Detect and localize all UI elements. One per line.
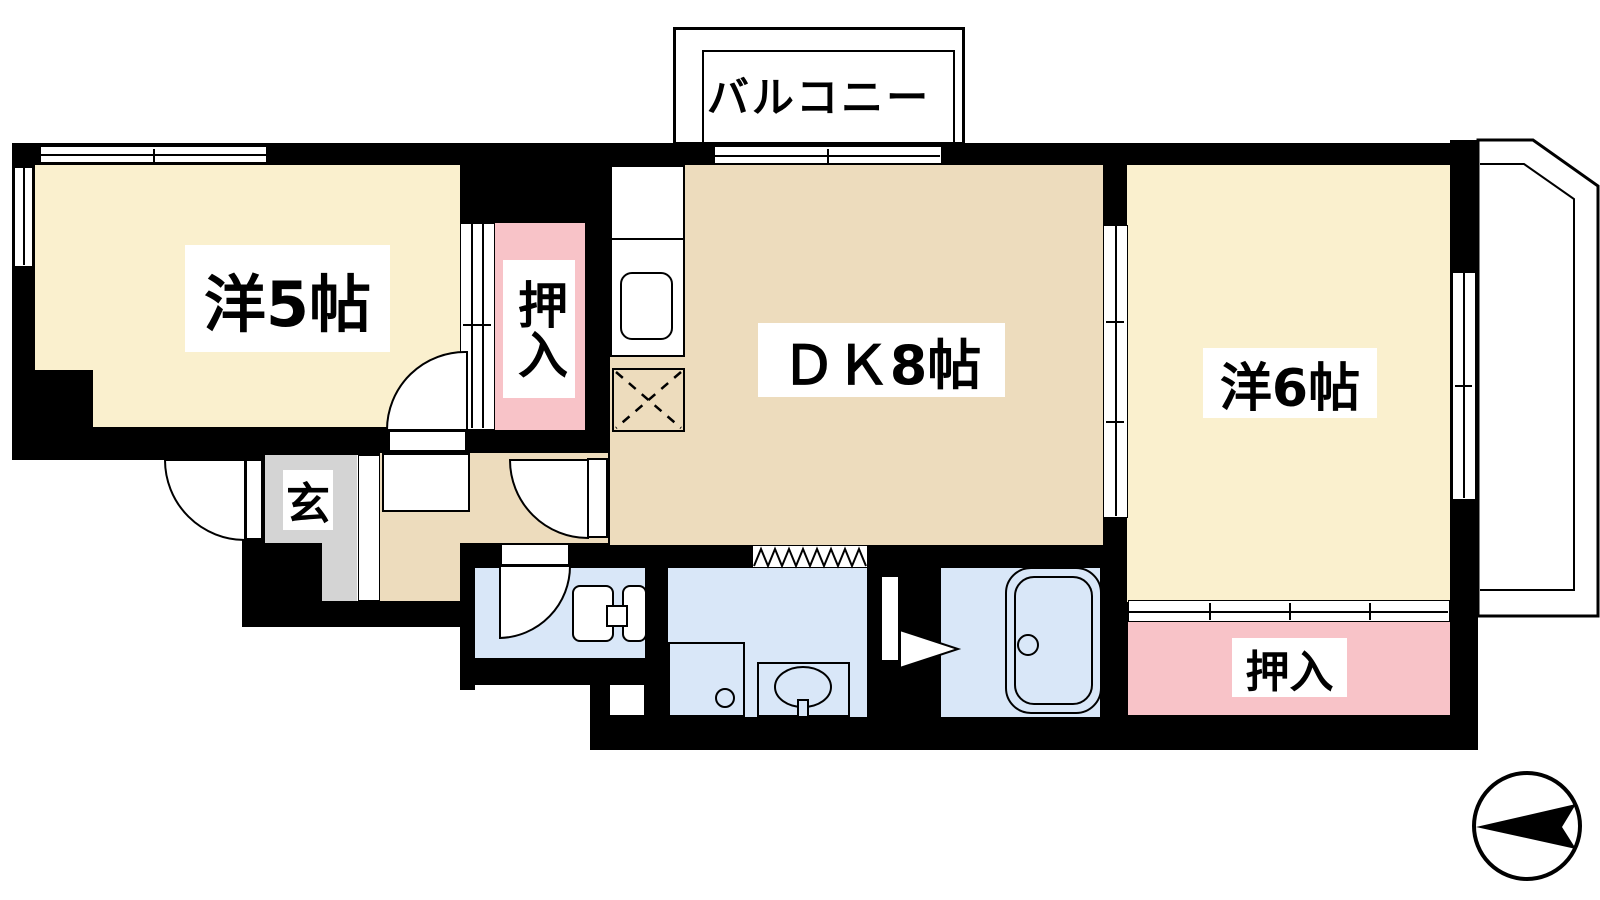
wall-washroom-toilet — [644, 545, 668, 740]
wall-bath-east — [1100, 518, 1130, 750]
kitchen-sink — [620, 272, 673, 340]
window-dk-balcony — [714, 146, 942, 164]
door-closet-bottom-sliding[interactable] — [1128, 600, 1450, 622]
wall-toilet-bath — [867, 568, 941, 740]
washroom-door[interactable] — [500, 543, 570, 566]
entry-door-swing — [165, 460, 245, 540]
hallway-nook — [380, 543, 460, 601]
entrance-step — [358, 455, 380, 601]
compass-icon — [1474, 773, 1580, 879]
label-closet-left: 押入 — [503, 260, 575, 398]
balcony-top-label: バルコニー — [690, 68, 948, 120]
washing-machine-connector — [606, 605, 628, 627]
window-western5-top — [40, 146, 267, 163]
label-closet-bottom: 押入 — [1232, 638, 1347, 697]
wall-western5-south — [93, 427, 612, 455]
door-closet-left-sliding[interactable] — [460, 223, 495, 430]
wall-closet-bottom-south — [1128, 715, 1478, 750]
shoe-cabinet — [382, 453, 470, 512]
label-entrance: 玄 — [283, 470, 333, 530]
door-western6-west-sliding[interactable] — [1103, 225, 1128, 518]
floor-plan: バルコニー バルコニー — [0, 0, 1600, 900]
window-western6-east — [1452, 272, 1476, 500]
label-western5: 洋5帖 — [185, 245, 390, 352]
western5-door[interactable] — [388, 430, 467, 452]
accordion-door[interactable] — [752, 545, 868, 568]
wall-step-sw — [590, 660, 610, 750]
bathtub-inner — [1014, 576, 1093, 705]
bathroom-door[interactable] — [880, 575, 900, 662]
label-western6: 洋6帖 — [1203, 348, 1377, 418]
wall-washroom-south — [460, 658, 648, 685]
label-dk: ＤＫ8帖 — [758, 323, 1005, 397]
wall-western6-west-top — [1103, 143, 1128, 225]
balcony-right-label: バルコニー — [1496, 205, 1558, 553]
refrigerator-space — [612, 368, 685, 432]
room-entrance-lower — [322, 543, 357, 601]
dk-door[interactable] — [587, 458, 608, 538]
wash-basin-stand — [757, 662, 850, 717]
toilet — [668, 642, 745, 717]
wall-entrance-south — [242, 601, 475, 627]
wall-dk-south — [608, 545, 1130, 568]
window-western5-left — [14, 167, 33, 267]
entry-door[interactable] — [245, 459, 263, 540]
